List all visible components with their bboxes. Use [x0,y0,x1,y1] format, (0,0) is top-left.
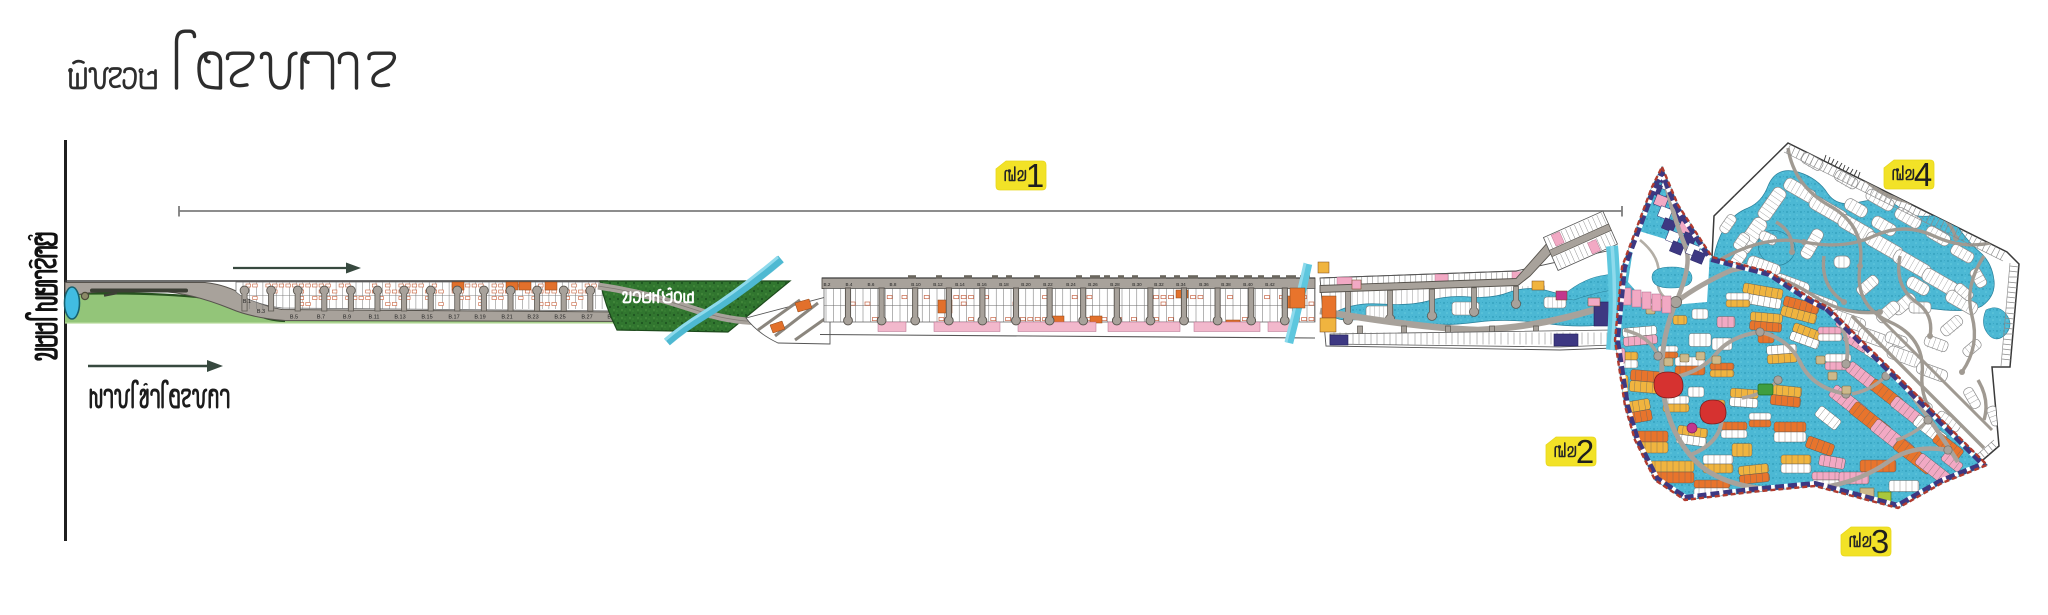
svg-text:B.5: B.5 [290,315,298,321]
svg-text:B.28: B.28 [1110,282,1120,287]
svg-text:B.16: B.16 [977,282,987,287]
svg-text:B.22: B.22 [1043,282,1053,287]
svg-text:B.11: B.11 [369,315,380,321]
svg-text:B.7: B.7 [317,315,325,321]
svg-text:B.15: B.15 [421,315,432,321]
svg-text:B.8: B.8 [890,282,897,287]
svg-text:B.3: B.3 [257,309,265,315]
svg-text:B.2: B.2 [824,282,831,287]
svg-text:B.18: B.18 [999,282,1009,287]
svg-text:B.19: B.19 [474,315,485,321]
svg-text:3: 3 [1871,523,1889,560]
svg-text:B.9: B.9 [343,315,351,321]
svg-text:B.42: B.42 [1265,282,1275,287]
svg-text:B.32: B.32 [1154,282,1164,287]
svg-text:4: 4 [1914,156,1932,193]
svg-text:B.34: B.34 [1176,282,1186,287]
svg-text:B.26: B.26 [1088,282,1098,287]
svg-text:B.30: B.30 [1132,282,1142,287]
svg-text:B.25: B.25 [554,315,565,321]
svg-text:B.23: B.23 [527,315,538,321]
svg-text:B.10: B.10 [911,282,921,287]
svg-text:B.13: B.13 [394,315,405,321]
svg-text:B.20: B.20 [1021,282,1031,287]
svg-text:B.1: B.1 [243,299,251,305]
svg-text:1: 1 [1026,157,1044,194]
svg-text:B.4: B.4 [846,282,853,287]
svg-text:B.38: B.38 [1221,282,1231,287]
svg-text:B.17: B.17 [448,315,459,321]
svg-text:B.40: B.40 [1243,282,1253,287]
svg-text:B.27: B.27 [581,315,592,321]
svg-text:B.12: B.12 [933,282,943,287]
svg-text:B.36: B.36 [1199,282,1209,287]
svg-text:B.21: B.21 [501,315,512,321]
svg-text:2: 2 [1576,433,1594,470]
svg-text:B.24: B.24 [1066,282,1076,287]
svg-text:B.6: B.6 [868,282,875,287]
svg-text:B.14: B.14 [955,282,965,287]
